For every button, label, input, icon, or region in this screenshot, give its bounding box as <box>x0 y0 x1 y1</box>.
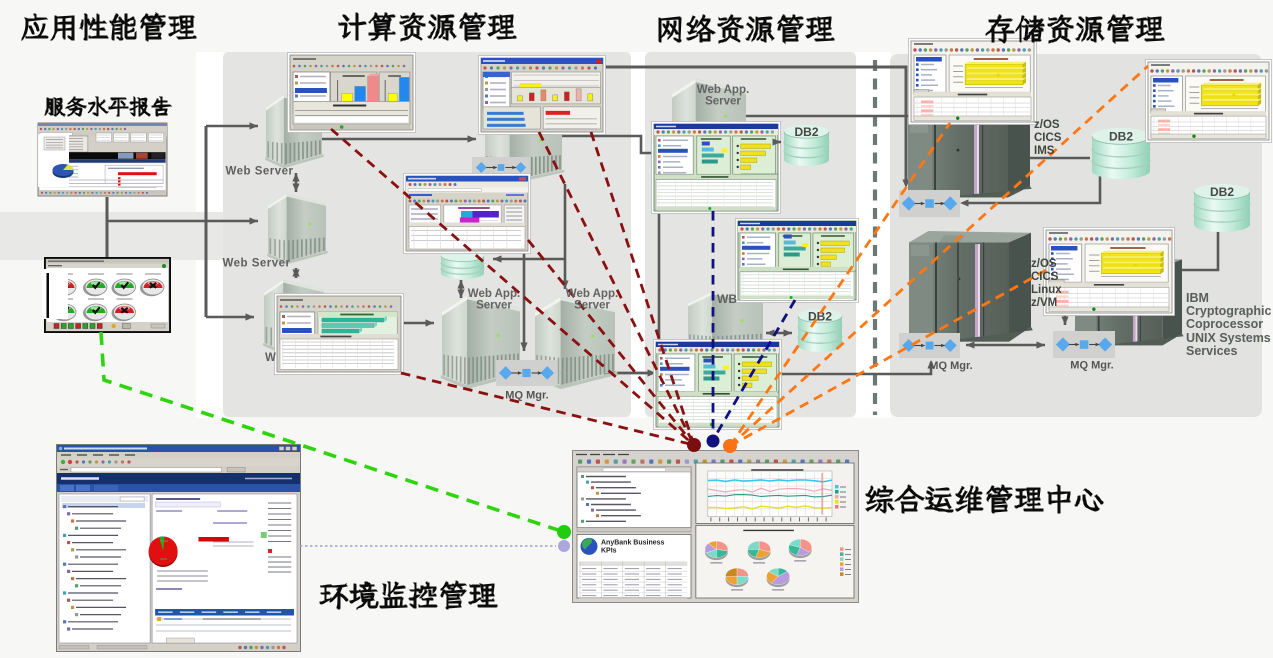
svg-text:KPIs: KPIs <box>601 547 617 554</box>
svg-text:AnyBank Business: AnyBank Business <box>601 539 665 546</box>
svg-text:W: W <box>265 352 276 364</box>
svg-text:IMS: IMS <box>1034 145 1055 157</box>
svg-text:MQ Mgr.: MQ Mgr. <box>1070 360 1113 372</box>
svg-text:Server: Server <box>476 300 512 312</box>
svg-text:Server: Server <box>574 300 610 312</box>
svg-text:Linux: Linux <box>1031 284 1062 296</box>
svg-text:MQ Mgr.: MQ Mgr. <box>505 390 548 402</box>
svg-text:DB2: DB2 <box>1210 185 1234 199</box>
svg-text:IBM: IBM <box>1186 291 1209 305</box>
svg-text:CICS: CICS <box>1034 132 1062 144</box>
svg-text:WB: WB <box>717 292 737 306</box>
svg-text:Web Server: Web Server <box>222 258 290 270</box>
svg-text:Services: Services <box>1186 344 1237 358</box>
svg-text:z/VM: z/VM <box>1031 297 1057 309</box>
svg-text:Web Server: Web Server <box>225 166 293 178</box>
svg-text:CICS: CICS <box>1031 271 1059 283</box>
svg-text:Web App.: Web App. <box>566 288 618 300</box>
svg-text:UNIX Systems: UNIX Systems <box>1186 331 1271 345</box>
svg-text:z/OS: z/OS <box>1034 119 1060 131</box>
svg-text:Web App.: Web App. <box>468 288 520 300</box>
svg-text:MQ Mgr.: MQ Mgr. <box>929 360 972 372</box>
svg-text:Server: Server <box>705 96 741 108</box>
svg-text:Coprocessor: Coprocessor <box>1186 317 1263 331</box>
svg-text:DB2: DB2 <box>794 125 818 139</box>
svg-text:DB2: DB2 <box>1109 130 1133 144</box>
svg-text:Web App.: Web App. <box>697 84 749 96</box>
svg-text:z/OS: z/OS <box>1031 258 1057 270</box>
svg-text:Cryptographic: Cryptographic <box>1186 304 1271 318</box>
